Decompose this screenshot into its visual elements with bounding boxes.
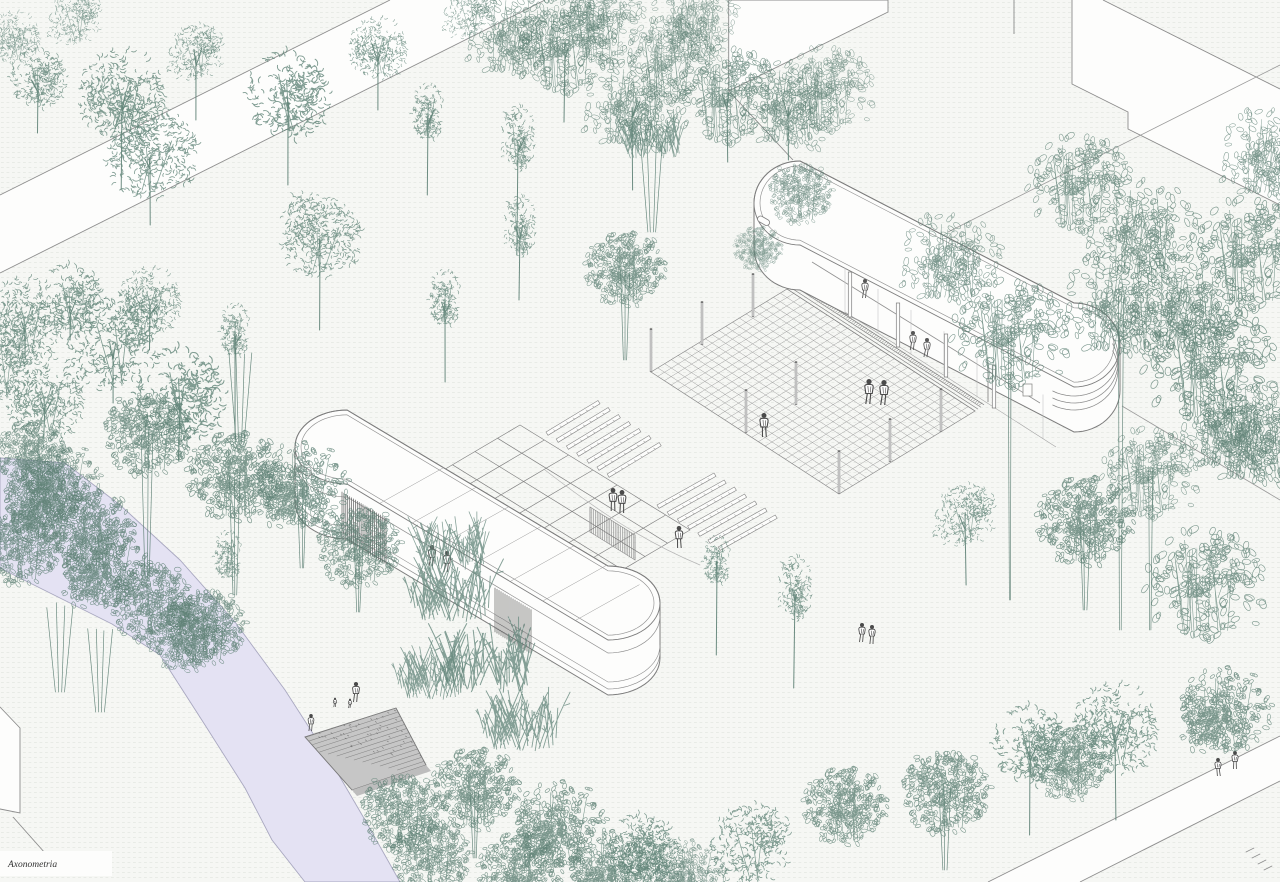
svg-text:Axonometria: Axonometria	[7, 860, 57, 870]
